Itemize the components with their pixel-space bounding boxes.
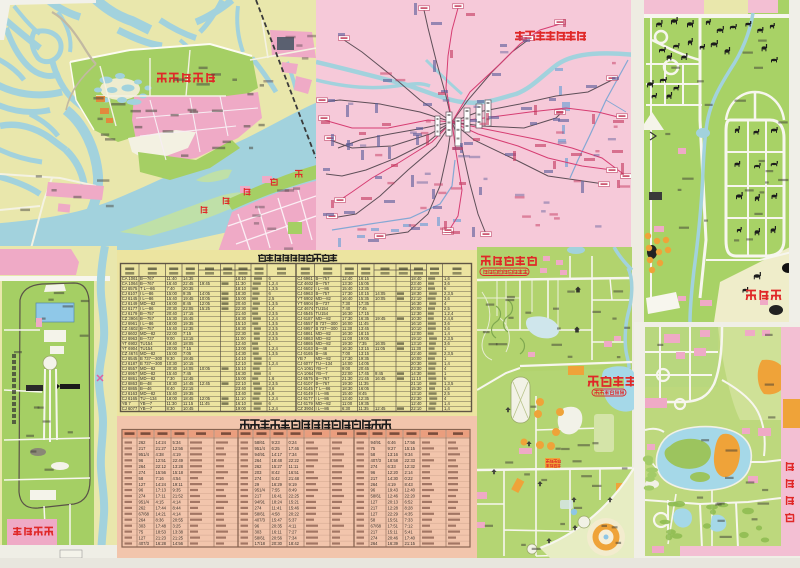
svg-text:127: 127 <box>139 482 147 487</box>
svg-text:21:52: 21:52 <box>173 494 184 499</box>
svg-text:18:58: 18:58 <box>388 458 399 463</box>
svg-text:58: 58 <box>371 517 376 522</box>
svg-text:274: 274 <box>139 470 147 475</box>
svg-text:3:25: 3:25 <box>173 523 182 528</box>
svg-text:8:36: 8:36 <box>156 517 165 522</box>
svg-text:67/68: 67/68 <box>139 512 150 517</box>
svg-text:8:49: 8:49 <box>289 488 298 493</box>
svg-text:951/4: 951/4 <box>139 500 150 505</box>
svg-text:2:14: 2:14 <box>405 470 414 475</box>
svg-text:19:43: 19:43 <box>388 488 399 493</box>
svg-text:11:05: 11:05 <box>375 346 386 351</box>
svg-text:CJ 6077: CJ 6077 <box>122 406 138 411</box>
svg-text:217: 217 <box>255 494 263 499</box>
svg-text:14:30: 14:30 <box>388 476 399 481</box>
svg-text:96: 96 <box>139 458 144 463</box>
svg-text:20:13: 20:13 <box>388 500 399 505</box>
svg-text:10:05: 10:05 <box>375 296 386 301</box>
svg-text:8:30: 8:30 <box>167 406 176 411</box>
svg-text:22:12: 22:12 <box>156 464 167 469</box>
svg-text:274: 274 <box>255 506 263 511</box>
svg-text:67/68: 67/68 <box>371 523 382 528</box>
svg-text:15:15: 15:15 <box>405 446 416 451</box>
svg-text:22:25: 22:25 <box>289 494 300 499</box>
svg-text:951/4: 951/4 <box>139 452 150 457</box>
svg-text:1,4: 1,4 <box>444 406 450 411</box>
svg-text:127: 127 <box>371 512 379 517</box>
svg-text:7:34: 7:34 <box>289 452 298 457</box>
svg-text:9:35: 9:35 <box>173 488 182 493</box>
svg-text:YB—7: YB—7 <box>140 406 153 411</box>
svg-text:19:45: 19:45 <box>200 281 211 286</box>
svg-text:17:56: 17:56 <box>405 440 416 445</box>
svg-text:9:19: 9:19 <box>289 482 298 487</box>
svg-text:75: 75 <box>371 446 376 451</box>
svg-text:11:41: 11:41 <box>272 506 283 511</box>
svg-text:58: 58 <box>139 476 144 481</box>
svg-text:274: 274 <box>371 535 379 540</box>
svg-text:407/3: 407/3 <box>255 517 266 522</box>
svg-text:58/61: 58/61 <box>255 535 266 540</box>
svg-text:6:33: 6:33 <box>388 464 397 469</box>
svg-text:274: 274 <box>139 494 147 499</box>
svg-text:58/61: 58/61 <box>255 440 266 445</box>
svg-text:22:33: 22:33 <box>405 458 416 463</box>
svg-text:10:05: 10:05 <box>200 366 211 371</box>
svg-text:217: 217 <box>371 476 379 481</box>
svg-text:21:27: 21:27 <box>156 446 167 451</box>
svg-text:4:35: 4:35 <box>405 512 414 517</box>
svg-text:274: 274 <box>255 476 263 481</box>
svg-text:15:25: 15:25 <box>200 306 211 311</box>
svg-text:12:32: 12:32 <box>405 464 416 469</box>
svg-text:14:21: 14:21 <box>156 512 167 517</box>
svg-text:8:44: 8:44 <box>173 506 182 511</box>
svg-text:264: 264 <box>371 482 379 487</box>
svg-text:127: 127 <box>139 535 147 540</box>
svg-text:15:11: 15:11 <box>388 529 399 534</box>
svg-text:7:33: 7:33 <box>405 517 414 522</box>
svg-text:127: 127 <box>371 500 379 505</box>
svg-text:17/18: 17/18 <box>255 541 266 546</box>
svg-text:17:51: 17:51 <box>388 523 399 528</box>
svg-text:264: 264 <box>139 464 147 469</box>
svg-text:4:38: 4:38 <box>156 452 165 457</box>
svg-text:12:40: 12:40 <box>405 488 416 493</box>
svg-text:96: 96 <box>371 488 376 493</box>
svg-text:15:47: 15:47 <box>272 517 283 522</box>
svg-text:18:48: 18:48 <box>272 458 283 463</box>
svg-text:11:11: 11:11 <box>289 464 300 469</box>
svg-text:19:11: 19:11 <box>173 482 184 487</box>
svg-text:58/61: 58/61 <box>255 512 266 517</box>
svg-text:303: 303 <box>139 523 147 528</box>
svg-text:217: 217 <box>371 529 379 534</box>
svg-text:20:55: 20:55 <box>173 517 184 522</box>
svg-text:7:27: 7:27 <box>289 529 298 534</box>
svg-text:16:29: 16:29 <box>272 482 283 487</box>
svg-text:13:28: 13:28 <box>173 464 184 469</box>
svg-text:407/3: 407/3 <box>139 541 150 546</box>
svg-text:264: 264 <box>255 458 263 463</box>
svg-text:4:58: 4:58 <box>272 512 281 517</box>
svg-text:22:29: 22:29 <box>388 512 399 517</box>
svg-text:15:21: 15:21 <box>289 500 300 505</box>
svg-text:203: 203 <box>255 470 263 475</box>
svg-text:4:11: 4:11 <box>289 523 298 528</box>
svg-text:22:10: 22:10 <box>411 406 422 411</box>
svg-text:22:49: 22:49 <box>173 458 184 463</box>
svg-text:18:24: 18:24 <box>272 500 283 505</box>
svg-text:CZ 3904: CZ 3904 <box>297 406 314 411</box>
svg-text:4:54: 4:54 <box>173 476 182 481</box>
svg-text:12:46: 12:46 <box>388 494 399 499</box>
svg-text:16:28: 16:28 <box>156 541 167 546</box>
svg-text:12:45: 12:45 <box>375 406 386 411</box>
svg-text:10:45: 10:45 <box>183 406 194 411</box>
svg-text:274: 274 <box>371 464 379 469</box>
svg-text:11:45: 11:45 <box>200 401 211 406</box>
svg-text:29: 29 <box>255 482 260 487</box>
svg-text:951/4: 951/4 <box>255 446 266 451</box>
svg-text:9:34: 9:34 <box>405 452 414 457</box>
svg-text:58/61: 58/61 <box>371 494 382 499</box>
svg-text:19:45: 19:45 <box>375 316 386 321</box>
svg-text:6:30: 6:30 <box>342 406 351 411</box>
svg-text:12:45: 12:45 <box>200 381 211 386</box>
svg-text:4:15: 4:15 <box>156 500 165 505</box>
svg-text:14:24: 14:24 <box>156 482 167 487</box>
svg-text:94/91: 94/91 <box>255 452 266 457</box>
svg-text:6:25: 6:25 <box>272 446 281 451</box>
svg-text:17:11: 17:11 <box>156 494 167 499</box>
svg-text:20:30: 20:30 <box>272 541 283 546</box>
svg-text:17:46: 17:46 <box>289 446 300 451</box>
svg-text:20:22: 20:22 <box>289 512 300 517</box>
svg-text:264: 264 <box>139 517 147 522</box>
svg-text:4:19: 4:19 <box>388 482 397 487</box>
svg-text:14:56: 14:56 <box>173 541 184 546</box>
svg-text:18:53: 18:53 <box>156 529 167 534</box>
svg-text:19:00: 19:00 <box>236 406 247 411</box>
svg-text:7:34: 7:34 <box>289 535 298 540</box>
svg-text:16:11: 16:11 <box>272 529 283 534</box>
svg-text:75: 75 <box>139 529 144 534</box>
svg-text:17:40: 17:40 <box>405 535 416 540</box>
svg-text:15:46: 15:46 <box>289 506 300 511</box>
svg-text:17:44: 17:44 <box>156 506 167 511</box>
svg-text:13:16: 13:16 <box>388 452 399 457</box>
svg-text:16:39: 16:39 <box>388 541 399 546</box>
svg-text:96: 96 <box>255 523 260 528</box>
svg-text:5:41: 5:41 <box>405 529 414 534</box>
svg-text:4:19: 4:19 <box>173 452 182 457</box>
svg-text:14:24: 14:24 <box>156 440 167 445</box>
svg-text:8:28: 8:28 <box>405 506 414 511</box>
svg-text:15:18: 15:18 <box>173 470 184 475</box>
svg-text:0:22: 0:22 <box>405 476 414 481</box>
svg-text:21:25: 21:25 <box>173 535 184 540</box>
svg-text:17:13: 17:13 <box>156 488 167 493</box>
svg-text:7:55: 7:55 <box>272 488 281 493</box>
svg-text:5:42: 5:42 <box>272 476 281 481</box>
svg-text:217: 217 <box>371 506 379 511</box>
svg-text:58: 58 <box>371 452 376 457</box>
svg-text:12:28: 12:28 <box>388 506 399 511</box>
svg-text:20:46: 20:46 <box>388 535 399 540</box>
svg-text:4:14: 4:14 <box>173 500 182 505</box>
svg-text:7:12: 7:12 <box>405 523 414 528</box>
svg-text:20:35: 20:35 <box>272 523 283 528</box>
svg-text:262: 262 <box>255 464 263 469</box>
svg-text:17:48: 17:48 <box>156 523 167 528</box>
svg-text:5:37: 5:37 <box>289 517 298 522</box>
svg-text:21:15: 21:15 <box>405 541 416 546</box>
svg-text:15:27: 15:27 <box>272 464 283 469</box>
svg-text:262: 262 <box>139 440 147 445</box>
svg-text:303: 303 <box>255 529 263 534</box>
svg-text:94/91: 94/91 <box>255 500 266 505</box>
svg-text:1,2,4: 1,2,4 <box>269 406 279 411</box>
svg-text:I L—86: I L—86 <box>316 406 330 411</box>
svg-text:13:38: 13:38 <box>173 529 184 534</box>
svg-text:96: 96 <box>371 470 376 475</box>
svg-text:12:56: 12:56 <box>173 446 184 451</box>
svg-text:16:51: 16:51 <box>289 470 300 475</box>
svg-text:407/3: 407/3 <box>371 458 382 463</box>
svg-text:16:41: 16:41 <box>272 494 283 499</box>
svg-text:9:27: 9:27 <box>388 446 397 451</box>
svg-text:14:17: 14:17 <box>272 452 283 457</box>
svg-text:8:42: 8:42 <box>272 470 281 475</box>
svg-text:18:42: 18:42 <box>289 541 300 546</box>
svg-text:951/4: 951/4 <box>255 488 266 493</box>
svg-text:6:52: 6:52 <box>405 500 414 505</box>
svg-text:22:20: 22:20 <box>405 494 416 499</box>
svg-text:8:43: 8:43 <box>405 482 414 487</box>
svg-text:11:35: 11:35 <box>359 406 370 411</box>
svg-text:20:56: 20:56 <box>272 535 283 540</box>
svg-text:21:48: 21:48 <box>289 476 300 481</box>
svg-text:0:24: 0:24 <box>289 440 298 445</box>
svg-text:4:14: 4:14 <box>173 512 182 517</box>
svg-text:7:16: 7:16 <box>156 476 165 481</box>
svg-text:262: 262 <box>139 506 147 511</box>
svg-text:217: 217 <box>139 446 147 451</box>
svg-text:5:34: 5:34 <box>173 440 182 445</box>
svg-text:12:20: 12:20 <box>388 470 399 475</box>
svg-text:12:51: 12:51 <box>156 458 167 463</box>
svg-text:94/91: 94/91 <box>371 440 382 445</box>
svg-text:15:51: 15:51 <box>388 517 399 522</box>
svg-text:96: 96 <box>139 488 144 493</box>
svg-text:15:56: 15:56 <box>156 470 167 475</box>
svg-text:22:22: 22:22 <box>289 458 300 463</box>
svg-text:264: 264 <box>371 541 379 546</box>
svg-text:16:45: 16:45 <box>375 376 386 381</box>
svg-text:21:23: 21:23 <box>156 535 167 540</box>
svg-text:9:23: 9:23 <box>272 440 281 445</box>
svg-text:6:46: 6:46 <box>388 440 397 445</box>
